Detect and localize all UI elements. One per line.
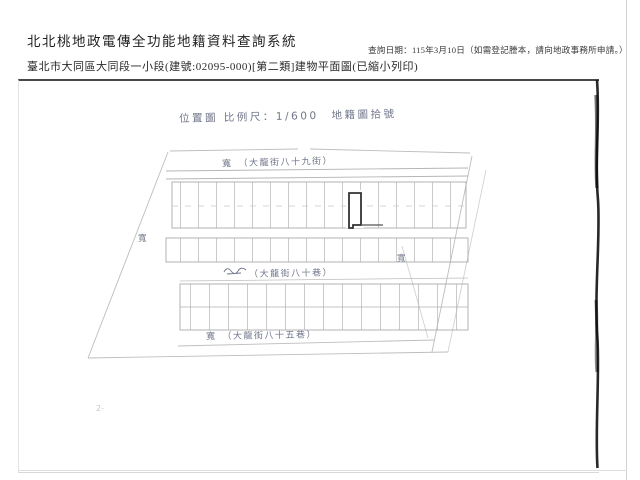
building-row-top: [172, 182, 466, 228]
site-plan-drawing: 位置圖 比例尺：1/600 地籍圖拾號: [0, 0, 640, 480]
street-top-lines: [166, 168, 468, 179]
width-mark-left: 寬: [138, 233, 147, 244]
width-mark-right: 寬: [397, 253, 406, 264]
corner-note: 2-: [96, 404, 104, 413]
printout-page: 北北桃地政電傳全功能地籍資料查詢系統 臺北市大同區大同段一小段(建號:02095…: [0, 0, 640, 480]
plan-caption: 位置圖 比例尺：1/600 地籍圖拾號: [179, 107, 397, 125]
street-label-middle: （大龍街八十巷）: [249, 266, 333, 279]
illegible-scribble: [224, 268, 246, 274]
street-label-top: 寬 （大龍街八十九街）: [222, 155, 333, 170]
building-row-middle: [166, 238, 468, 262]
